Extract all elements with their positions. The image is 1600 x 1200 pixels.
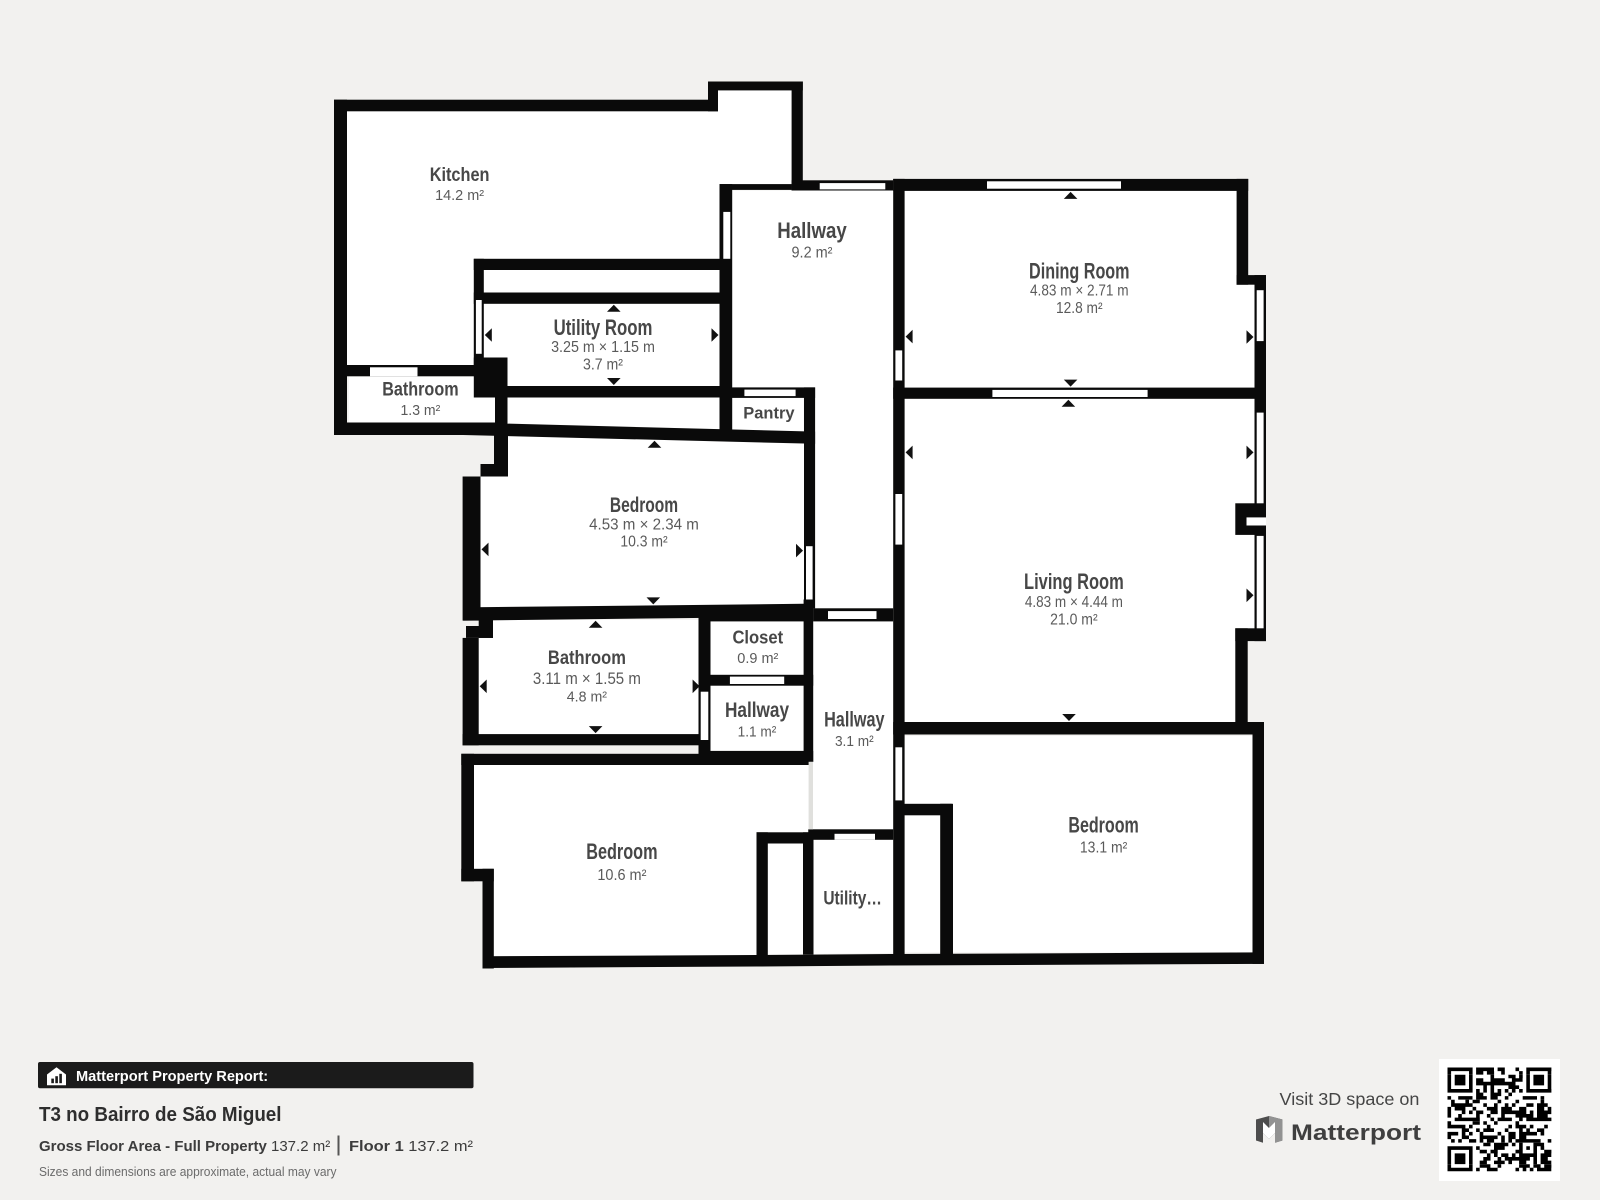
svg-text:3.11 m × 1.55 m: 3.11 m × 1.55 m — [533, 670, 641, 688]
svg-text:14.2 m²: 14.2 m² — [435, 188, 484, 204]
svg-text:1.1 m²: 1.1 m² — [738, 724, 777, 741]
svg-text:Matterport: Matterport — [1291, 1120, 1422, 1145]
svg-text:4.83 m × 4.44 m: 4.83 m × 4.44 m — [1025, 594, 1123, 611]
svg-text:Bedroom: Bedroom — [610, 492, 678, 517]
svg-text:Bathroom: Bathroom — [382, 380, 458, 401]
svg-text:Living Room: Living Room — [1024, 569, 1124, 594]
svg-text:4.53 m × 2.34 m: 4.53 m × 2.34 m — [589, 516, 699, 533]
svg-text:13.1 m²: 13.1 m² — [1080, 839, 1127, 856]
svg-text:3.7 m²: 3.7 m² — [583, 356, 623, 373]
svg-text:Utility…: Utility… — [823, 887, 882, 909]
svg-text:9.2 m²: 9.2 m² — [792, 244, 833, 261]
svg-text:3.25 m × 1.15 m: 3.25 m × 1.15 m — [551, 339, 655, 356]
svg-text:Visit 3D space on: Visit 3D space on — [1280, 1089, 1420, 1109]
svg-text:Hallway: Hallway — [777, 218, 847, 243]
svg-text:Dining Room: Dining Room — [1029, 259, 1130, 284]
svg-text:Pantry: Pantry — [743, 403, 795, 422]
svg-text:10.6 m²: 10.6 m² — [597, 867, 646, 884]
svg-text:3.1 m²: 3.1 m² — [835, 733, 874, 750]
svg-text:4.8 m²: 4.8 m² — [567, 689, 607, 705]
svg-text:Hallway: Hallway — [824, 708, 884, 732]
svg-text:21.0 m²: 21.0 m² — [1050, 612, 1098, 629]
svg-text:Kitchen: Kitchen — [430, 165, 490, 186]
svg-text:Matterport Property Report:: Matterport Property Report: — [76, 1069, 268, 1085]
svg-text:Utility Room: Utility Room — [554, 315, 653, 340]
svg-text:10.3 m²: 10.3 m² — [620, 534, 667, 551]
svg-text:0.9 m²: 0.9 m² — [737, 651, 778, 667]
svg-text:1.3 m²: 1.3 m² — [401, 403, 441, 419]
svg-text:Bathroom: Bathroom — [548, 647, 626, 669]
svg-text:Sizes and dimensions are appro: Sizes and dimensions are approximate, ac… — [39, 1164, 337, 1179]
svg-text:Floor 1 137.2 m²: Floor 1 137.2 m² — [349, 1138, 473, 1155]
svg-text:Bedroom: Bedroom — [1068, 812, 1139, 837]
svg-text:Gross Floor Area - Full Proper: Gross Floor Area - Full Property 137.2 m… — [39, 1138, 330, 1155]
svg-text:T3 no Bairro de São Miguel: T3 no Bairro de São Miguel — [39, 1103, 282, 1126]
svg-text:Hallway: Hallway — [725, 698, 789, 722]
svg-text:Closet: Closet — [732, 627, 783, 647]
svg-text:12.8 m²: 12.8 m² — [1056, 300, 1103, 317]
svg-text:Bedroom: Bedroom — [586, 839, 657, 864]
svg-text:4.83 m × 2.71 m: 4.83 m × 2.71 m — [1030, 283, 1129, 300]
